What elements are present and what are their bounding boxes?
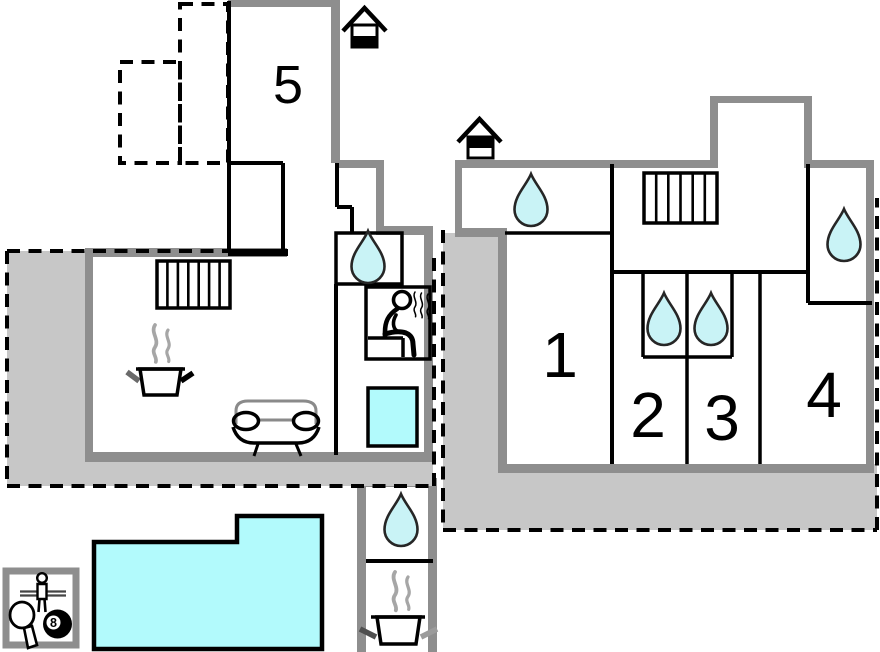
annex-wall-left	[357, 478, 366, 652]
eight-ball-number: 8	[50, 616, 57, 630]
wall	[498, 233, 507, 473]
wall	[228, 249, 288, 256]
floor-plan-drawing: 5	[0, 0, 880, 652]
house-level-icon-ground-floor	[343, 8, 386, 47]
game-room-box: 8	[6, 571, 76, 648]
wall	[336, 160, 383, 168]
terrace-gray-dashed	[180, 4, 228, 163]
wall	[710, 96, 718, 168]
wall	[85, 248, 93, 458]
annex-wall-right	[428, 478, 437, 652]
wall	[85, 452, 433, 462]
hot-tub-icon	[368, 388, 417, 446]
room-5-number: 5	[273, 55, 303, 115]
foosball-player-body	[38, 584, 47, 599]
wall	[228, 163, 283, 251]
sauna-person-head	[394, 292, 411, 309]
upper-floor-plan: 1 2 3 4	[443, 96, 877, 530]
terrace-light-dashed	[120, 62, 180, 163]
house-icon-upper-level-filled	[468, 137, 493, 148]
wall	[866, 160, 874, 472]
wall	[804, 160, 874, 168]
floor-plan-page: 5	[0, 0, 880, 652]
wall	[804, 96, 812, 166]
paddle-blade	[10, 602, 34, 628]
pool-house-annex	[357, 478, 437, 652]
wall	[455, 160, 717, 168]
room-3-number: 3	[704, 382, 740, 454]
swimming-pool	[94, 516, 322, 649]
wall	[331, 0, 340, 163]
billiard-8-ball-icon: 8	[43, 610, 72, 639]
stairs-icon	[644, 173, 717, 223]
wall	[710, 96, 812, 103]
house-icon-ground-level-filled	[352, 36, 377, 47]
wall	[498, 464, 874, 473]
room-4-number: 4	[806, 359, 842, 431]
room-2-number: 2	[630, 379, 666, 451]
house-level-icon-upper-floor	[458, 119, 501, 158]
protrusion-interior	[717, 103, 805, 166]
wall	[455, 160, 462, 237]
wall	[376, 160, 384, 232]
foosball-player-head	[37, 573, 47, 583]
wall	[228, 0, 340, 7]
ground-floor-plan: 5	[7, 0, 434, 486]
room-1-number: 1	[542, 319, 578, 391]
